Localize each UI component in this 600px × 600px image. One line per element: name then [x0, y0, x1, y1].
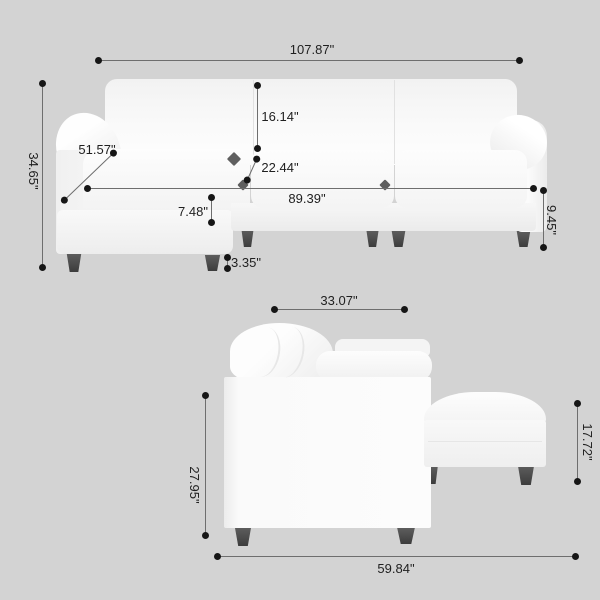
dim-overall-height-line	[42, 83, 43, 268]
ottoman-seam	[428, 441, 542, 442]
dim-overall-height-label: 34.65"	[25, 147, 41, 195]
dim-leg-height-line	[227, 257, 228, 269]
dim-overall-depth-label: 59.84"	[377, 561, 414, 576]
sofa-leg	[515, 231, 532, 247]
dim-ottoman-height-label: 17.72"	[579, 418, 595, 466]
chaise-leg	[203, 255, 222, 271]
sofa-leg	[390, 231, 407, 247]
back-cushion-seam-left	[253, 80, 254, 164]
side-sofa-leg	[395, 528, 417, 544]
side-sofa-leg	[233, 528, 253, 546]
dim-ottoman-height-line	[577, 403, 578, 482]
dim-leg-height-label: 3.35"	[231, 255, 261, 270]
right-seat-cushion	[395, 150, 527, 208]
dim-overall-width-label: 107.87"	[290, 42, 334, 57]
dim-seat-thickness-label: 7.48"	[178, 204, 208, 219]
dim-back-cushion-height-line	[257, 85, 258, 149]
dim-top-depth-label: 33.07"	[320, 293, 357, 308]
ottoman-leg	[516, 466, 536, 485]
chaise-seat-cushion	[83, 149, 250, 217]
dim-seat-thickness-line	[211, 197, 212, 223]
dim-inner-seat-width-label: 89.39"	[288, 191, 325, 206]
dim-seat-depth-label: 22.44"	[261, 160, 298, 175]
dim-inner-seat-width-line	[87, 188, 534, 189]
dim-top-depth-line	[274, 309, 405, 310]
back-cushion-seam-right	[394, 80, 395, 164]
dim-overall-depth-line	[217, 556, 576, 557]
sofa-leg	[240, 230, 255, 247]
ottoman-base	[424, 420, 546, 467]
side-body	[224, 377, 431, 528]
sofa-leg	[365, 231, 380, 247]
dim-chaise-length-label: 51.57"	[78, 142, 115, 157]
dim-base-height-label: 9.45"	[543, 196, 559, 244]
chaise-leg	[65, 254, 83, 272]
dim-body-height-label: 27.95"	[186, 461, 202, 509]
dim-back-cushion-height-label: 16.14"	[261, 109, 298, 124]
dim-overall-width-line	[98, 60, 520, 61]
dimension-diagram: 107.87" 34.65" 51.57" 16.14" 22.44" 89.3…	[0, 0, 600, 600]
dim-body-height-line	[205, 395, 206, 536]
